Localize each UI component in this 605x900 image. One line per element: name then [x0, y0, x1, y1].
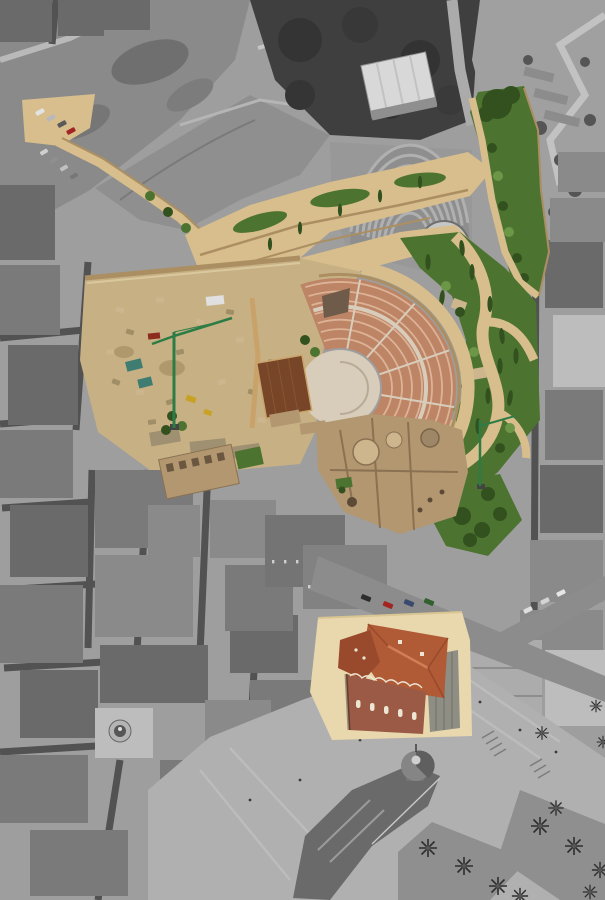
gran-hotel-dome	[109, 720, 131, 742]
round-tower	[421, 429, 439, 447]
museum-block	[310, 612, 472, 740]
museum-building	[338, 624, 460, 734]
waste-skip	[148, 332, 161, 339]
stage-platform	[257, 355, 312, 418]
aerial-photo-canvas	[0, 0, 605, 900]
site-cabin	[206, 295, 225, 306]
aerial-photo	[0, 0, 605, 900]
apse	[353, 439, 379, 465]
